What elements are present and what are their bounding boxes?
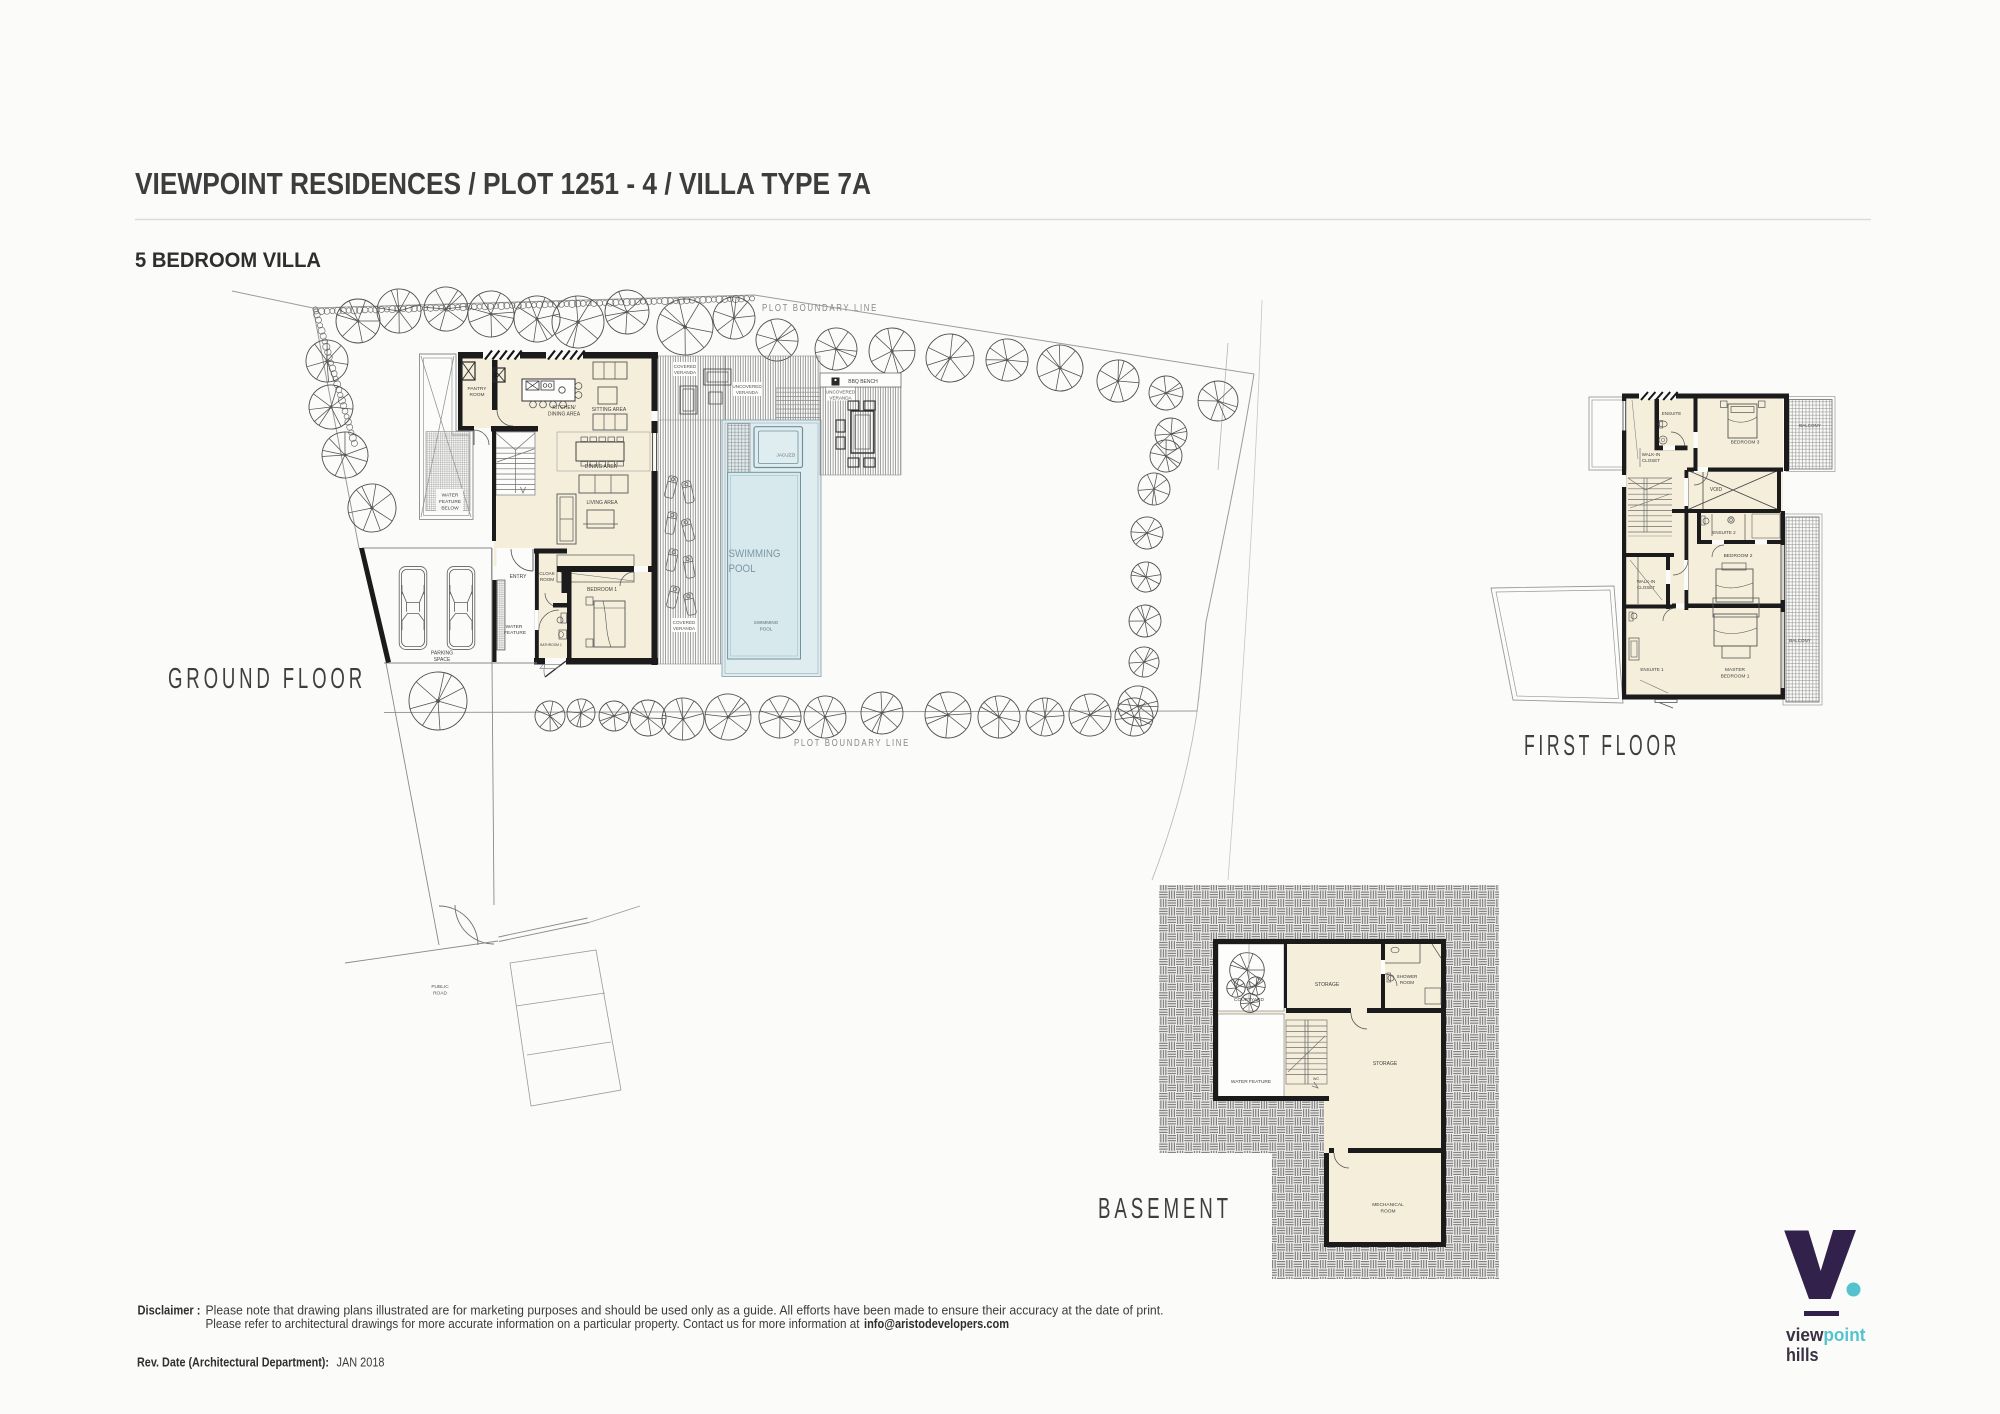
svg-text:DINING AREA: DINING AREA [585, 464, 618, 470]
svg-text:VERANDA: VERANDA [674, 370, 697, 375]
svg-text:SHOWER: SHOWER [1397, 974, 1418, 979]
svg-text:Rev. Date (Architectural Depar: Rev. Date (Architectural Department): [137, 1355, 329, 1370]
svg-text:JAN 2018: JAN 2018 [337, 1355, 385, 1370]
svg-text:ROOM: ROOM [540, 577, 554, 582]
svg-text:MASTER: MASTER [1725, 667, 1746, 673]
svg-text:BELOW: BELOW [441, 506, 459, 512]
svg-text:STORAGE: STORAGE [1373, 1061, 1398, 1067]
svg-text:5 BEDROOM VILLA: 5 BEDROOM VILLA [135, 248, 321, 272]
svg-text:BALCONY: BALCONY [1799, 423, 1821, 428]
svg-text:CLOSET: CLOSET [1637, 585, 1655, 590]
svg-text:BASEMENT: BASEMENT [1098, 1193, 1232, 1225]
svg-text:LIVING AREA: LIVING AREA [586, 500, 618, 506]
svg-text:ENSUITE: ENSUITE [1662, 411, 1682, 416]
svg-text:ROOM: ROOM [1381, 1209, 1396, 1215]
svg-text:FIRST FLOOR: FIRST FLOOR [1524, 730, 1680, 762]
svg-text:BEDROOM 1: BEDROOM 1 [1721, 674, 1750, 680]
svg-text:PLOT BOUNDARY LINE: PLOT BOUNDARY LINE [794, 737, 910, 749]
svg-text:VERANDA: VERANDA [736, 390, 759, 395]
svg-text:DINING AREA: DINING AREA [548, 412, 581, 418]
svg-text:GROUND FLOOR: GROUND FLOOR [168, 663, 366, 695]
svg-text:VOID: VOID [1710, 487, 1723, 493]
svg-text:FEATURE: FEATURE [439, 499, 461, 505]
svg-text:SWIMMING: SWIMMING [729, 548, 781, 560]
svg-text:WC: WC [1313, 1077, 1319, 1081]
svg-text:KITCHEN/: KITCHEN/ [552, 405, 576, 411]
svg-text:viewpoint: viewpoint [1786, 1325, 1866, 1345]
svg-text:ROOM: ROOM [470, 392, 485, 398]
svg-text:PLOT BOUNDARY LINE: PLOT BOUNDARY LINE [762, 302, 878, 314]
svg-text:WATER FEATURE: WATER FEATURE [1231, 1079, 1271, 1085]
svg-text:WATER: WATER [506, 624, 523, 630]
svg-text:ENSUITE 2: ENSUITE 2 [1712, 530, 1736, 535]
svg-text:SWIMMING: SWIMMING [754, 620, 779, 625]
svg-text:CLOAK: CLOAK [539, 571, 556, 576]
svg-text:PUBLIC: PUBLIC [431, 984, 449, 990]
svg-text:MECHANICAL: MECHANICAL [1372, 1202, 1404, 1208]
svg-text:Please refer to architectural: Please refer to architectural drawings f… [206, 1316, 860, 1331]
svg-text:WALK-IN: WALK-IN [1642, 452, 1661, 457]
svg-text:VERANDA: VERANDA [829, 396, 852, 401]
svg-text:POOL: POOL [729, 563, 756, 575]
svg-text:BATHROOM 1: BATHROOM 1 [540, 643, 562, 647]
svg-text:UNCOVERED: UNCOVERED [826, 390, 856, 395]
svg-text:SPACE: SPACE [434, 657, 451, 663]
svg-text:UNCOVERED: UNCOVERED [732, 384, 762, 389]
svg-text:PANTRY: PANTRY [467, 386, 487, 392]
svg-text:info@aristodevelopers.com: info@aristodevelopers.com [864, 1316, 1009, 1331]
svg-text:ROOM: ROOM [1400, 980, 1414, 985]
svg-text:COURTYARD: COURTYARD [1234, 997, 1264, 1003]
svg-text:ENSUITE 1: ENSUITE 1 [1640, 667, 1664, 672]
svg-text:WATER: WATER [442, 493, 459, 499]
svg-text:COVERED: COVERED [673, 620, 696, 625]
svg-text:Disclaimer :: Disclaimer : [138, 1303, 201, 1318]
svg-text:BEDROOM 2: BEDROOM 2 [1724, 553, 1753, 559]
svg-text:POOL: POOL [760, 627, 773, 632]
svg-text:COVERED: COVERED [674, 364, 697, 369]
svg-text:BEDROOM 1: BEDROOM 1 [587, 587, 617, 593]
svg-text:FEATURE: FEATURE [504, 630, 526, 636]
svg-text:BALCONY: BALCONY [1789, 638, 1811, 643]
svg-text:STORAGE: STORAGE [1315, 982, 1340, 988]
svg-text:CLOSET: CLOSET [1642, 458, 1660, 463]
svg-text:VIEWPOINT RESIDENCES / PLOT 12: VIEWPOINT RESIDENCES / PLOT 1251 - 4 / V… [135, 167, 871, 201]
svg-text:VERANDA: VERANDA [673, 626, 696, 631]
svg-text:hills: hills [1786, 1345, 1819, 1365]
svg-text:JACUZZI: JACUZZI [777, 453, 796, 458]
svg-text:BBQ BENCH: BBQ BENCH [848, 379, 878, 385]
svg-text:PARKING: PARKING [431, 651, 453, 657]
svg-text:SITTING AREA: SITTING AREA [592, 407, 627, 413]
svg-text:ROAD: ROAD [433, 991, 447, 997]
svg-text:BEDROOM 3: BEDROOM 3 [1731, 440, 1760, 446]
svg-text:ENTRY: ENTRY [510, 574, 528, 580]
